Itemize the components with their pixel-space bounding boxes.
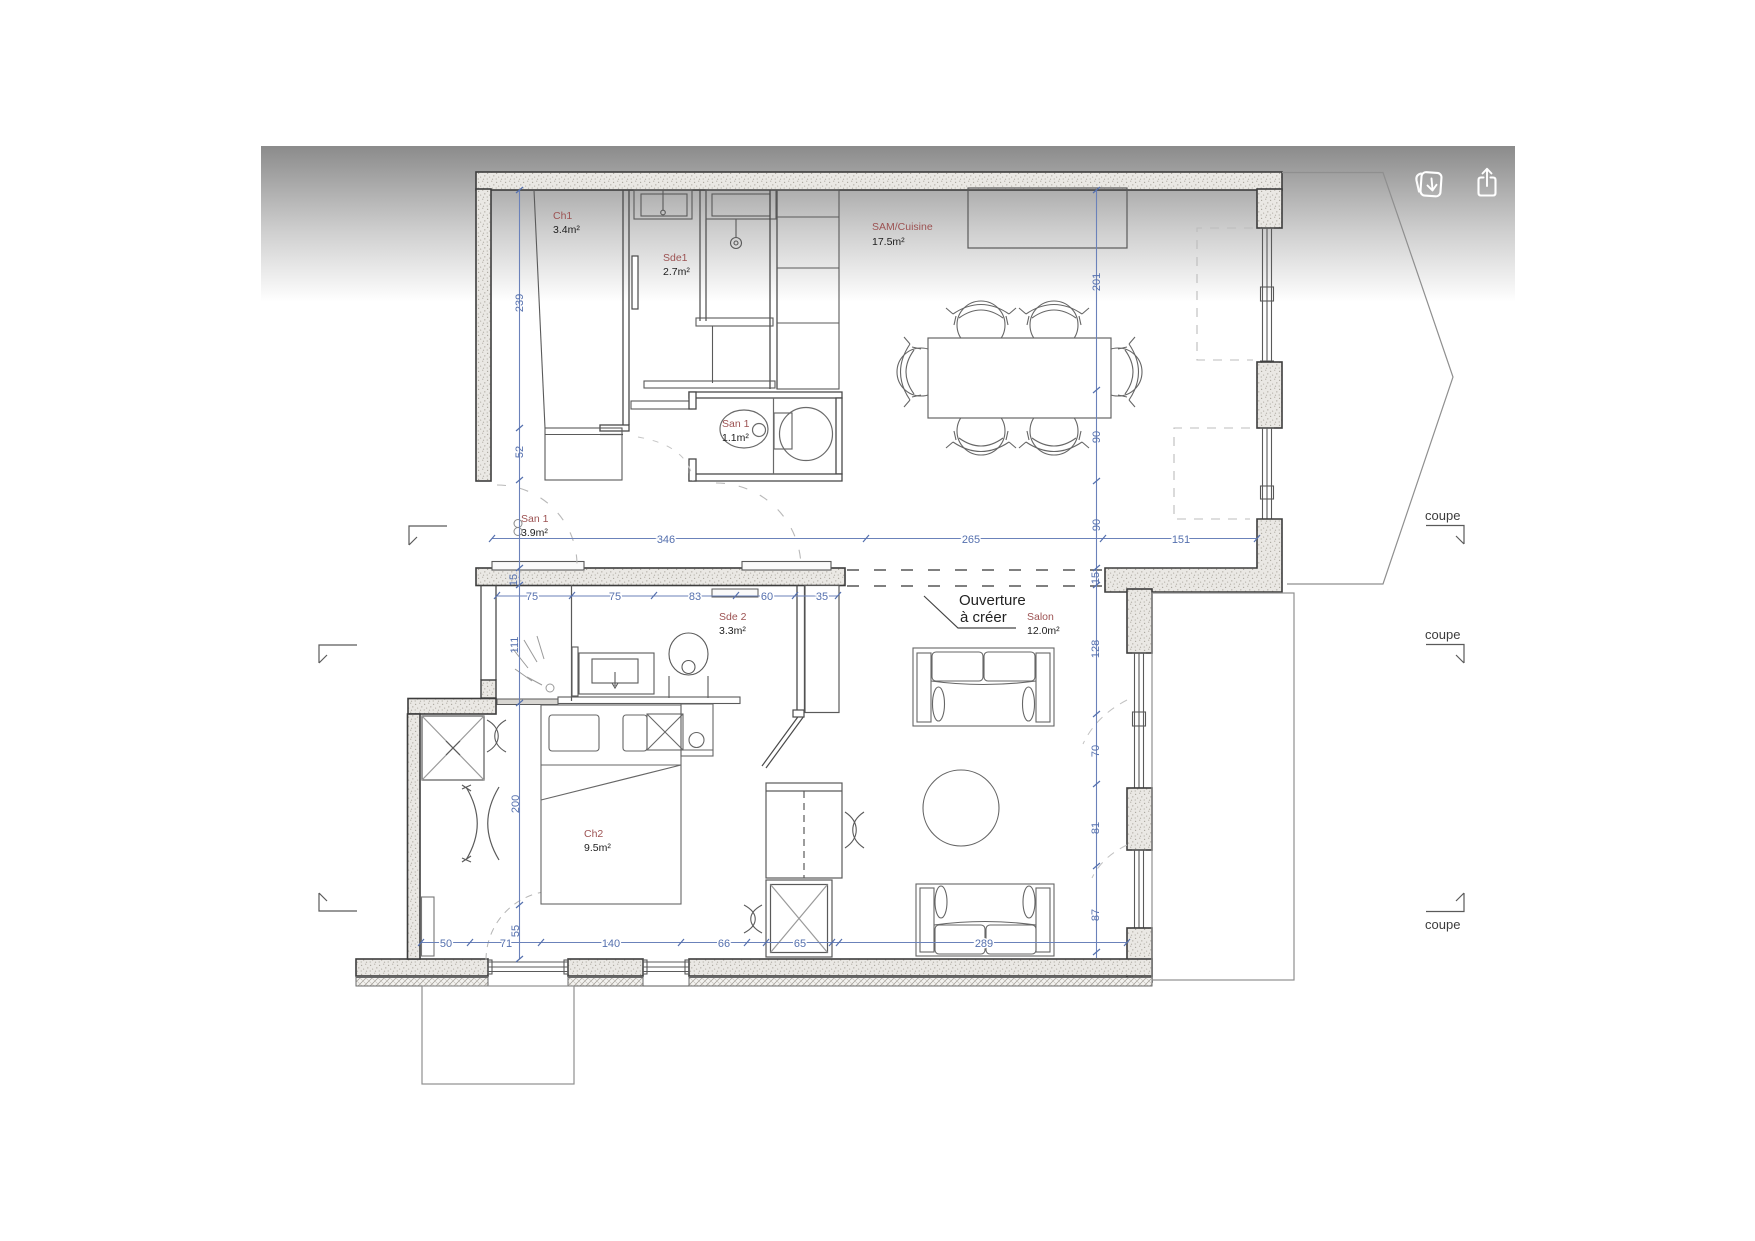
- svg-text:3.4m²: 3.4m²: [553, 224, 580, 236]
- svg-text:Ch1: Ch1: [553, 210, 572, 222]
- svg-text:75: 75: [526, 591, 538, 603]
- svg-text:Ouverture: Ouverture: [959, 592, 1026, 609]
- svg-text:346: 346: [657, 534, 675, 546]
- svg-text:50: 50: [440, 938, 452, 950]
- svg-text:151: 151: [1172, 534, 1190, 546]
- svg-text:1.1m²: 1.1m²: [722, 432, 749, 444]
- svg-text:San 1: San 1: [521, 513, 549, 525]
- svg-text:coupe: coupe: [1425, 508, 1460, 523]
- svg-text:128: 128: [1090, 640, 1102, 658]
- svg-text:265: 265: [962, 534, 980, 546]
- svg-text:12.0m²: 12.0m²: [1027, 625, 1060, 637]
- svg-text:coupe: coupe: [1425, 917, 1460, 932]
- svg-text:15: 15: [1090, 572, 1102, 584]
- svg-text:55: 55: [510, 925, 522, 937]
- svg-text:60: 60: [761, 591, 773, 603]
- svg-text:201: 201: [1091, 273, 1103, 291]
- svg-text:Sde1: Sde1: [663, 252, 688, 264]
- svg-text:71: 71: [500, 938, 512, 950]
- svg-text:15: 15: [508, 574, 520, 586]
- svg-text:65: 65: [794, 938, 806, 950]
- svg-text:66: 66: [718, 938, 730, 950]
- svg-text:200: 200: [510, 795, 522, 813]
- svg-text:87: 87: [1090, 909, 1102, 921]
- svg-text:San 1: San 1: [722, 418, 750, 430]
- svg-text:52: 52: [514, 446, 526, 458]
- svg-text:17.5m²: 17.5m²: [872, 236, 905, 248]
- svg-text:Ch2: Ch2: [584, 828, 603, 840]
- svg-text:3.9m²: 3.9m²: [521, 527, 548, 539]
- svg-text:35: 35: [816, 591, 828, 603]
- svg-text:à créer: à créer: [960, 609, 1007, 626]
- svg-text:111: 111: [509, 637, 521, 654]
- svg-text:coupe: coupe: [1425, 627, 1460, 642]
- svg-text:Salon: Salon: [1027, 611, 1054, 623]
- svg-text:9.5m²: 9.5m²: [584, 842, 611, 854]
- svg-text:289: 289: [975, 938, 993, 950]
- svg-text:70: 70: [1090, 745, 1102, 757]
- svg-text:239: 239: [514, 294, 526, 312]
- svg-text:75: 75: [609, 591, 621, 603]
- svg-text:81: 81: [1090, 822, 1102, 834]
- svg-text:SAM/Cuisine: SAM/Cuisine: [872, 221, 933, 233]
- svg-text:2.7m²: 2.7m²: [663, 266, 690, 278]
- svg-text:3.3m²: 3.3m²: [719, 625, 746, 637]
- svg-text:90: 90: [1091, 519, 1103, 531]
- svg-text:140: 140: [602, 938, 620, 950]
- svg-text:90: 90: [1091, 431, 1103, 443]
- svg-text:83: 83: [689, 591, 701, 603]
- svg-text:Sde 2: Sde 2: [719, 611, 747, 623]
